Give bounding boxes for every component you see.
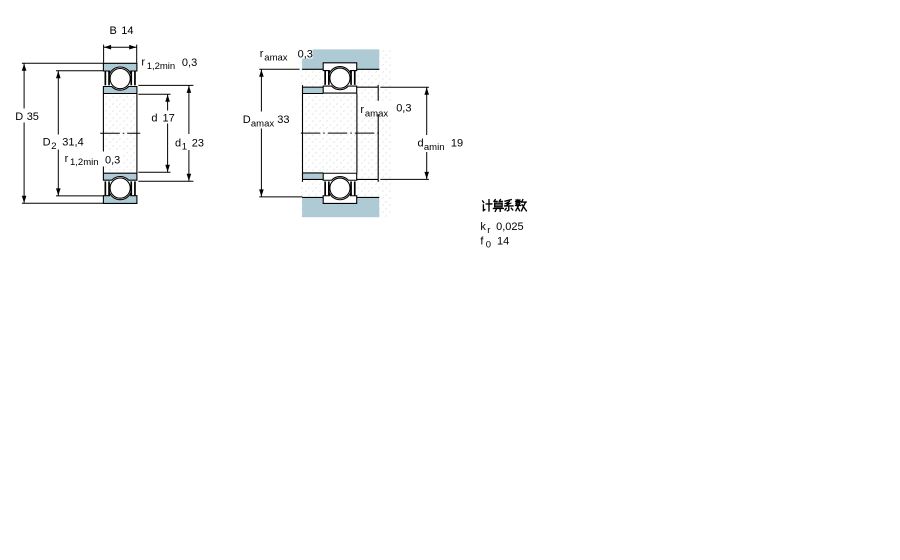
svg-text:0: 0 xyxy=(486,239,491,250)
svg-text:r: r xyxy=(487,225,490,236)
svg-text:1,2min: 1,2min xyxy=(70,157,99,168)
svg-text:23: 23 xyxy=(192,137,204,149)
svg-text:r: r xyxy=(65,153,69,165)
svg-text:33: 33 xyxy=(277,114,289,126)
svg-text:amax: amax xyxy=(264,52,287,63)
svg-text:r: r xyxy=(260,48,264,60)
svg-text:d: d xyxy=(151,112,157,124)
svg-text:r: r xyxy=(360,104,364,116)
svg-text:14: 14 xyxy=(121,25,133,37)
svg-text:35: 35 xyxy=(27,111,39,123)
svg-text:r: r xyxy=(141,57,145,69)
svg-text:0,3: 0,3 xyxy=(298,48,313,60)
svg-text:17: 17 xyxy=(163,112,175,124)
svg-text:1,2min: 1,2min xyxy=(147,61,176,72)
svg-text:D: D xyxy=(243,114,251,126)
svg-text:amax: amax xyxy=(365,109,388,120)
svg-text:B: B xyxy=(110,25,117,37)
svg-text:D: D xyxy=(43,137,51,149)
svg-text:0,3: 0,3 xyxy=(105,154,120,166)
svg-text:amax: amax xyxy=(251,118,274,129)
svg-text:1: 1 xyxy=(182,142,187,153)
svg-text:amin: amin xyxy=(424,142,445,153)
svg-text:14: 14 xyxy=(497,236,509,248)
svg-text:19: 19 xyxy=(451,138,463,150)
svg-text:0,3: 0,3 xyxy=(182,57,197,69)
svg-text:d: d xyxy=(418,138,424,150)
svg-text:0,025: 0,025 xyxy=(496,221,524,233)
svg-text:D: D xyxy=(15,111,23,123)
svg-text:k: k xyxy=(480,221,486,233)
svg-text:d: d xyxy=(175,137,181,149)
svg-text:2: 2 xyxy=(51,141,56,152)
svg-text:31,4: 31,4 xyxy=(62,137,83,149)
svg-text:0,3: 0,3 xyxy=(396,103,411,115)
